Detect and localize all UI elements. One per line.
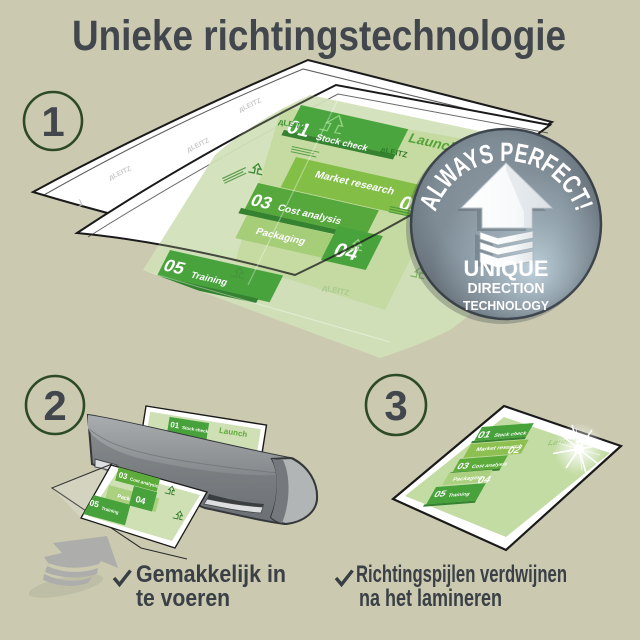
svg-text:na het lamineren: na het lamineren [359,585,502,612]
svg-text:UNIQUE: UNIQUE [464,256,549,281]
svg-text:2: 2 [43,382,66,429]
svg-text:DIRECTION: DIRECTION [468,281,545,297]
svg-text:Gemakkelijk in: Gemakkelijk in [136,561,286,588]
svg-text:Richtingspijlen verdwijnen: Richtingspijlen verdwijnen [356,561,567,588]
svg-text:TECHNOLOGY: TECHNOLOGY [463,298,549,313]
svg-text:te voeren: te voeren [136,585,230,612]
svg-text:3: 3 [384,382,407,429]
svg-text:Unieke richtingstechnologie: Unieke richtingstechnologie [72,12,566,60]
svg-text:1: 1 [41,98,64,145]
